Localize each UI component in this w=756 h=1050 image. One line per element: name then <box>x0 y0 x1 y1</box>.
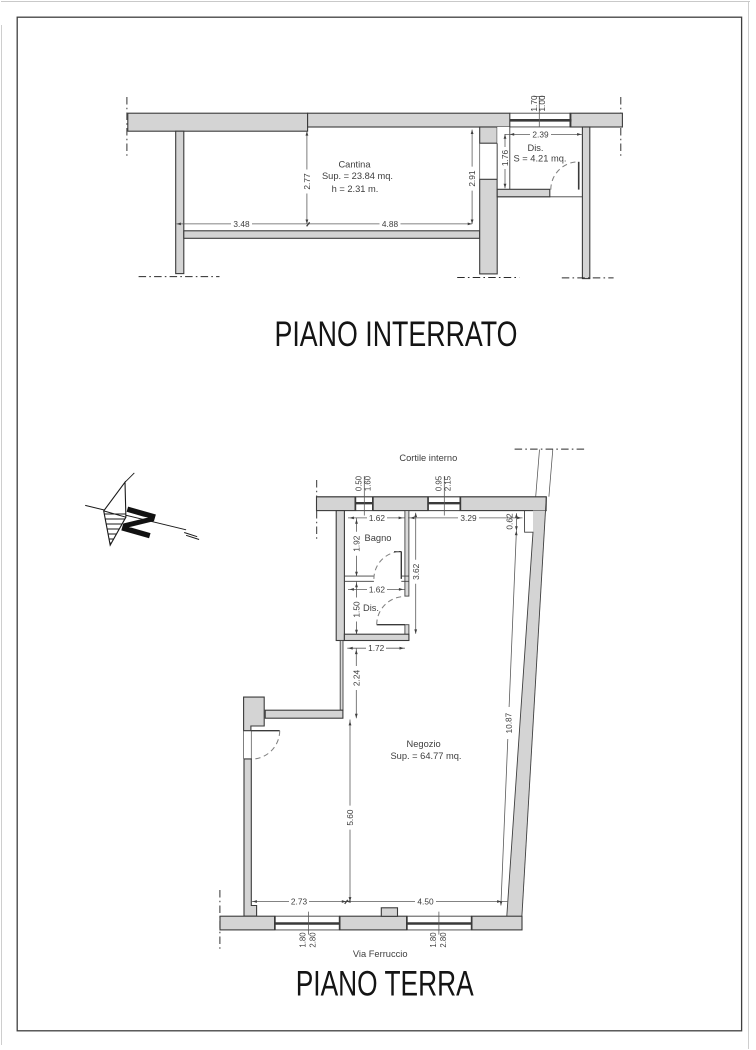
svg-text:2.80: 2.80 <box>308 932 317 948</box>
svg-text:3.48: 3.48 <box>233 219 250 229</box>
svg-text:3.29: 3.29 <box>460 513 477 523</box>
svg-text:Dis.: Dis. <box>527 143 543 153</box>
svg-text:1.80: 1.80 <box>429 932 438 948</box>
svg-text:1.92: 1.92 <box>352 535 362 552</box>
svg-text:2.15: 2.15 <box>444 475 453 491</box>
svg-text:3.62: 3.62 <box>411 563 421 580</box>
svg-text:S = 4.21 mq.: S = 4.21 mq. <box>514 154 567 164</box>
svg-text:1.80: 1.80 <box>298 932 307 948</box>
svg-text:1.00: 1.00 <box>537 95 547 112</box>
svg-text:Bagno: Bagno <box>365 533 392 543</box>
svg-text:Cortile interno: Cortile interno <box>399 453 457 463</box>
svg-text:1.62: 1.62 <box>369 513 386 523</box>
svg-text:PIANO TERRA: PIANO TERRA <box>296 964 474 1003</box>
svg-text:PIANO INTERRATO: PIANO INTERRATO <box>275 315 518 354</box>
svg-text:Cantina: Cantina <box>338 159 371 169</box>
svg-text:2.80: 2.80 <box>439 932 448 948</box>
svg-text:0.62: 0.62 <box>504 513 514 530</box>
svg-text:1.62: 1.62 <box>369 584 386 594</box>
svg-text:Dis.: Dis. <box>363 603 379 613</box>
svg-text:10.87: 10.87 <box>503 712 514 734</box>
svg-text:0.95: 0.95 <box>435 475 444 491</box>
svg-text:Sup. = 64.77 mq.: Sup. = 64.77 mq. <box>390 751 461 761</box>
svg-text:4.50: 4.50 <box>417 897 434 907</box>
svg-text:2.77: 2.77 <box>302 173 312 190</box>
svg-text:2.39: 2.39 <box>532 129 549 139</box>
svg-text:4.88: 4.88 <box>382 219 399 229</box>
svg-text:h = 2.31 m.: h = 2.31 m. <box>332 184 379 194</box>
svg-text:1.76: 1.76 <box>500 150 510 167</box>
svg-text:Negozio: Negozio <box>407 739 441 749</box>
svg-text:Sup. = 23.84 mq.: Sup. = 23.84 mq. <box>322 171 393 181</box>
svg-text:2.73: 2.73 <box>291 897 308 907</box>
svg-text:2.24: 2.24 <box>351 670 361 687</box>
svg-text:1.60: 1.60 <box>364 475 373 491</box>
svg-text:1.50: 1.50 <box>352 601 362 618</box>
svg-text:1.72: 1.72 <box>368 643 385 653</box>
svg-text:5.60: 5.60 <box>345 809 355 826</box>
svg-text:2.91: 2.91 <box>467 170 477 187</box>
svg-text:0.50: 0.50 <box>355 475 364 491</box>
svg-text:Via Ferruccio: Via Ferruccio <box>353 949 408 959</box>
